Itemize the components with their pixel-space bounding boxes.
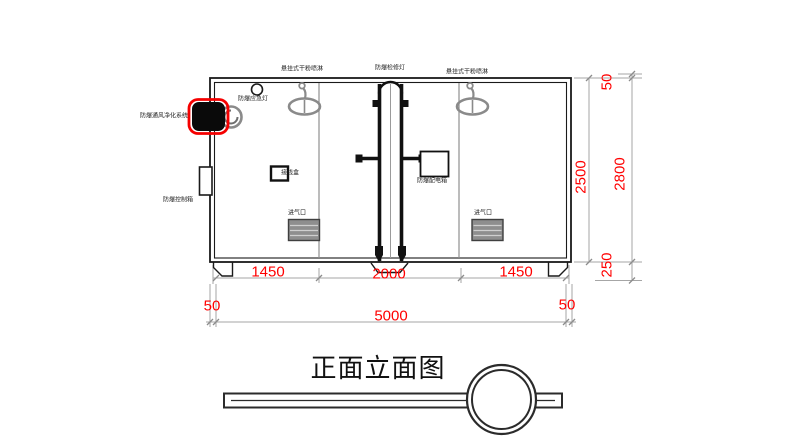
sprinkler-right-label: 悬挂式干粉喷淋 [446,69,488,76]
drawing-canvas: 悬挂式干粉喷淋 防爆检修灯 悬挂式干粉喷淋 防爆应急灯 防爆通风净化系统 防爆控… [0,0,800,445]
air-inlet-left-icon [289,220,320,241]
emergency-light-label: 防爆应急灯 [238,96,268,103]
dim-base: 250 [600,252,615,277]
sprinkler-left-icon [289,83,320,115]
dim-roof: 50 [600,74,615,91]
dim-segment-right: 1450 [499,265,532,280]
dimension-lines [206,74,642,327]
ventilation-system-label: 防爆通风净化系统 [140,113,188,120]
distribution-box-label: 防爆配电箱 [417,178,447,185]
air-inlet-right-label: 进气口 [474,210,492,217]
dim-wall-right: 50 [559,298,576,313]
air-inlet-right-icon [472,220,503,241]
ventilation-unit-icon [189,100,242,134]
dim-segment-center: 2000 [372,267,405,282]
sprinkler-right-icon [457,83,488,115]
air-inlet-left-label: 进气口 [288,210,306,217]
control-box-icon [200,167,213,195]
inspection-light-label: 防爆检修灯 [375,65,405,72]
dim-total-width: 5000 [374,309,407,324]
dim-inner-height: 2500 [574,160,589,193]
sprinkler-left-label: 悬挂式干粉喷淋 [281,66,323,73]
junction-box-label: 接线盒 [281,170,299,177]
distribution-box-icon [421,152,449,177]
dim-segment-left: 1450 [251,265,284,280]
inspection-light-assembly [356,82,426,262]
emergency-light-icon [252,84,263,95]
control-box-label: 防爆控制箱 [163,197,193,204]
drawing-title: 正面立面图 [310,355,445,383]
dim-wall-left: 50 [204,299,221,314]
dim-total-height: 2800 [613,157,628,190]
